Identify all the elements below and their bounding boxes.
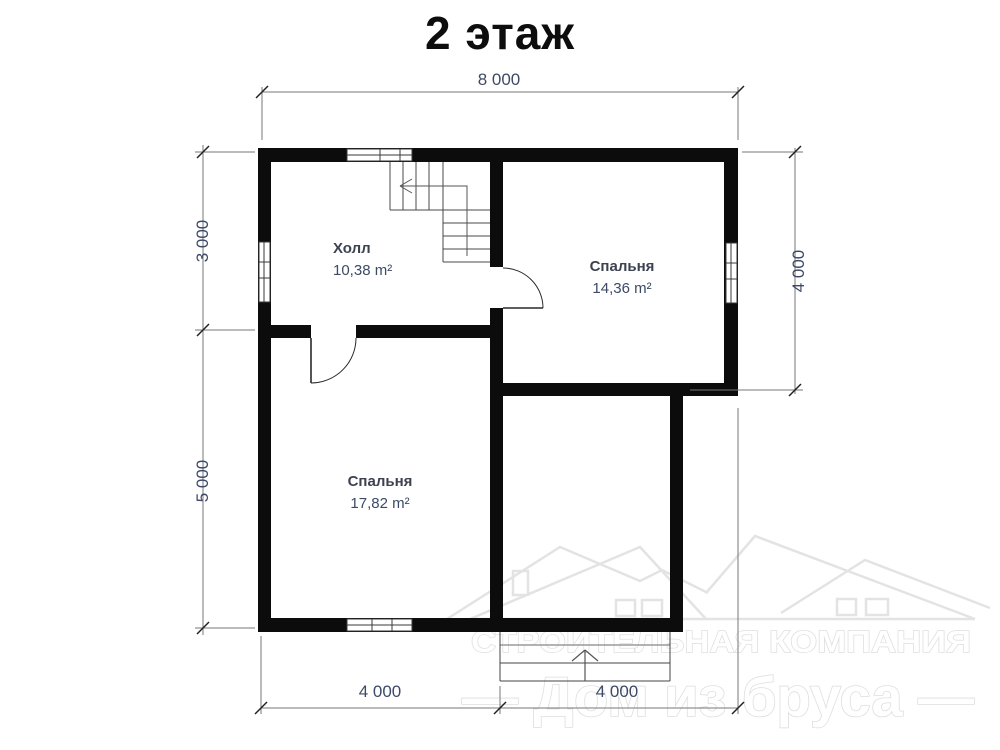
dimension-right: 4 000 (789, 221, 809, 321)
dimension-top: 8 000 (449, 70, 549, 90)
walls (258, 148, 738, 632)
room-area: 14,36 m² (572, 278, 672, 300)
wall-interior-vertical-lower (490, 308, 503, 618)
window-bottom (347, 619, 412, 631)
room-label-bedroom-left: Спальня 17,82 m² (330, 471, 430, 515)
room-name: Холл (333, 238, 392, 260)
window-top (347, 149, 412, 161)
wall-hall-bedroom-left2 (356, 325, 490, 338)
dimension-left-upper: 3 000 (193, 191, 213, 291)
wall-hall-bedroom-left1 (258, 325, 311, 338)
wall-terrace-right (670, 383, 683, 618)
room-name: Спальня (572, 256, 672, 278)
dimension-bottom-right: 4 000 (567, 682, 667, 702)
watermark-slogan-text: — Дом из бруса — (462, 665, 974, 728)
window-left (259, 242, 270, 302)
wall-bottom (258, 618, 683, 632)
watermark-roof-right-peak (706, 536, 975, 619)
door-bedroom-left (311, 338, 356, 383)
watermark-window (837, 599, 856, 615)
room-name: Спальня (330, 471, 430, 493)
watermark-window (866, 599, 888, 615)
door-bedroom-right (503, 268, 543, 308)
room-label-hall: Холл 10,38 m² (333, 238, 392, 282)
room-area: 17,82 m² (330, 493, 430, 515)
room-area: 10,38 m² (333, 260, 392, 282)
dimension-left-lower: 5 000 (193, 431, 213, 531)
wall-top (258, 148, 738, 162)
watermark-window (642, 600, 662, 616)
dimension-bottom-left: 4 000 (330, 682, 430, 702)
watermark-window (616, 600, 635, 616)
staircase (390, 162, 490, 262)
wall-left (258, 148, 271, 632)
page-title: 2 этаж (0, 6, 1000, 60)
floor-plan-drawing: СТРОИТЕЛЬНАЯ КОМПАНИЯ — Дом из бруса — (0, 0, 1000, 750)
stair-direction-arrow (400, 179, 467, 256)
room-label-bedroom-right: Спальня 14,36 m² (572, 256, 672, 300)
floor-plan-page: СТРОИТЕЛЬНАЯ КОМПАНИЯ — Дом из бруса — (0, 0, 1000, 750)
window-right (726, 243, 737, 303)
wall-interior-vertical-upper (490, 162, 503, 267)
watermark-roof-left (447, 547, 708, 619)
